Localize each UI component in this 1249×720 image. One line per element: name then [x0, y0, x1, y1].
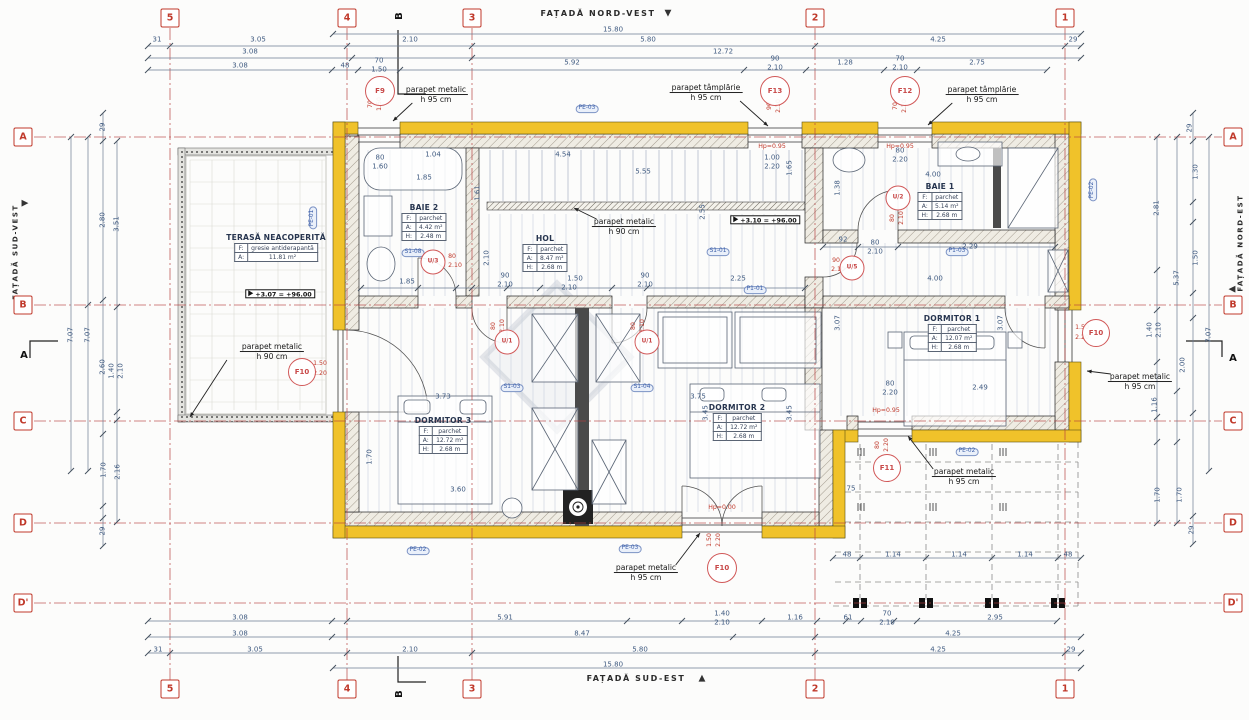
level-arrow-icon — [248, 290, 253, 296]
dim-label: 3.51 — [114, 216, 121, 232]
grid-bubble-row: D' — [1224, 594, 1243, 613]
grid-bubble-col: 2 — [806, 680, 825, 699]
room-info-table: F:parchetA:4.42 m²H:2.48 m — [401, 213, 446, 241]
room-title: DORMITOR 1 — [924, 314, 980, 323]
floor-plan-canvas — [0, 0, 1249, 720]
dim-label: 1.70 — [101, 462, 108, 478]
stair-void — [487, 150, 805, 210]
room-label: DORMITOR 3F:parchetA:12.72 m²H:2.68 m — [415, 416, 471, 454]
dim-label: 5.91 — [497, 615, 513, 622]
dim-label: 90 — [641, 273, 650, 280]
dim-label: 2.10 — [561, 285, 577, 292]
red-dim-label: 1.50 — [707, 533, 713, 547]
grid-bubble-row: D — [1224, 514, 1243, 533]
dim-label: 1.85 — [416, 175, 432, 182]
room-info-table: F:parchetA:5.14 m²H:2.68 m — [917, 192, 962, 220]
facade-label-sud-est: FAȚADĂ SUD-EST — [587, 675, 686, 683]
dim-label: 4.54 — [555, 152, 571, 159]
room-label: BAIE 1F:parchetA:5.14 m²H:2.68 m — [917, 182, 962, 220]
room-title: BAIE 2 — [401, 203, 446, 212]
dim-label: 48 — [1064, 552, 1073, 559]
window-marker: F12 — [890, 76, 920, 106]
dim-label: 2.10 — [402, 647, 418, 654]
dim-label: 1.14 — [1017, 552, 1033, 559]
red-dim-label: 80 — [890, 214, 896, 222]
dim-label: 4.00 — [925, 172, 941, 179]
dim-label: 1.40 — [714, 611, 730, 618]
door-marker: U/3 — [421, 250, 446, 275]
room-label: DORMITOR 1F:parchetA:12.07 m²H:2.68 m — [924, 314, 980, 352]
dim-label: 31 — [154, 647, 163, 654]
dim-label: 2.20 — [764, 164, 780, 171]
grid-bubble-col: 2 — [806, 9, 825, 28]
facade-arrow-left-icon: ▶ — [22, 200, 29, 209]
dim-label: 29 — [1067, 647, 1076, 654]
room-info-table: F:parchetA:12.72 m²H:2.68 m — [713, 413, 762, 441]
dim-label: 2.10 — [879, 620, 895, 627]
red-dim-label: 80 — [491, 322, 497, 330]
dim-label: 2.10 — [867, 249, 883, 256]
dim-label: 2.10 — [484, 250, 491, 266]
room-info-table: F:gresie antiderapantăA:11.81 m² — [234, 243, 318, 262]
dim-label: 2.81 — [1154, 200, 1161, 216]
section-marker: B — [395, 12, 405, 20]
dim-label: 3.45 — [787, 405, 794, 421]
dim-label: 80 — [871, 240, 880, 247]
sink-baie1 — [956, 147, 980, 161]
dim-label: 3.08 — [242, 49, 258, 56]
ref-tag: PE-02 — [956, 448, 979, 456]
facade-label-nord-est: FAȚADĂ NORD-EST — [1238, 194, 1245, 291]
dim-label: 1.50 — [567, 276, 583, 283]
room-title: HOL — [522, 234, 567, 243]
window-marker: F11 — [873, 454, 901, 482]
dim-label: 4.25 — [930, 647, 946, 654]
dim-label: 2.95 — [987, 615, 1003, 622]
dim-label: 48 — [843, 552, 852, 559]
level-tag: +3.10 = +96.00 — [730, 215, 800, 224]
dim-label: 2.10 — [402, 37, 418, 44]
dim-label: 4.25 — [945, 631, 961, 638]
grid-bubble-col: 5 — [161, 680, 180, 699]
level-arrow-icon — [733, 216, 738, 222]
dim-label: 75 — [847, 486, 856, 493]
dim-label: 5.80 — [640, 37, 656, 44]
annotation: parapet metalich 90 cm — [240, 342, 304, 362]
dim-label: 1.14 — [951, 552, 967, 559]
dim-label: 90 — [771, 56, 780, 63]
dim-label: 2.55 — [700, 204, 707, 220]
dim-label: 3.07 — [835, 315, 842, 331]
annotation: parapet tâmplărieh 95 cm — [946, 85, 1019, 105]
grid-bubble-row: A — [14, 128, 33, 147]
dim-label: 2.49 — [972, 385, 988, 392]
facade-label-nord-vest: FAȚADĂ NORD-VEST — [540, 10, 655, 18]
ref-tag: P1-01 — [744, 286, 767, 294]
dim-label: 1.16 — [1152, 397, 1159, 413]
red-dim-label: 80 — [448, 254, 456, 260]
dim-label: 7.07 — [68, 327, 75, 343]
dim-label: 1.40 — [1147, 322, 1154, 338]
room-title: DORMITOR 2 — [709, 403, 765, 412]
dim-label: 2.10 — [637, 282, 653, 289]
dim-label: 8.47 — [574, 631, 590, 638]
dim-label: 1.38 — [835, 180, 842, 196]
red-dim-label: 80 — [631, 322, 637, 330]
red-dim-label: Hp=0.00 — [708, 505, 736, 511]
dim-label: 5.37 — [1174, 270, 1181, 286]
door-marker: U/1 — [495, 330, 520, 355]
dim-label: 1.28 — [837, 60, 853, 67]
dim-label: 2.10 — [892, 65, 908, 72]
red-dim-label: 1.50 — [313, 361, 327, 367]
grid-bubble-row: A — [1224, 128, 1243, 147]
dim-label: 1.70 — [1177, 487, 1184, 503]
dim-label: 2.60 — [100, 359, 107, 375]
dim-label: 2.75 — [969, 60, 985, 67]
dim-label: 61 — [844, 615, 853, 622]
grid-bubble-col: 4 — [338, 680, 357, 699]
grid-bubble-col: 1 — [1056, 9, 1075, 28]
dim-label: 2.20 — [882, 390, 898, 397]
dim-label: 3.08 — [232, 63, 248, 70]
annotation: parapet metalich 95 cm — [614, 563, 678, 583]
section-marker: B — [395, 690, 405, 698]
ref-tag: PE-03 — [576, 105, 599, 113]
red-dim-label: 2.10 — [899, 211, 905, 225]
red-dim-label: 2.20 — [716, 533, 722, 547]
grid-bubble-col: 4 — [338, 9, 357, 28]
section-marker: A — [1229, 354, 1237, 364]
annotation: parapet metalich 95 cm — [404, 85, 468, 105]
dim-label: 3.05 — [250, 37, 266, 44]
dim-label: 3.08 — [232, 615, 248, 622]
room-label: BAIE 2F:parchetA:4.42 m²H:2.48 m — [401, 203, 446, 241]
annotation: parapet metalich 95 cm — [932, 467, 996, 487]
dim-label: 5.92 — [564, 60, 580, 67]
red-dim-label: 2.20 — [884, 438, 890, 452]
dim-label: 1.16 — [787, 615, 803, 622]
red-dim-label: Hp=0.95 — [872, 408, 900, 414]
facade-arrow-right-icon: ◀ — [1229, 286, 1236, 295]
red-dim-label: 80 — [875, 441, 881, 449]
ref-tag: S1-01 — [707, 248, 730, 256]
grid-bubble-col: 5 — [161, 9, 180, 28]
room-title: BAIE 1 — [917, 182, 962, 191]
dim-label: 2.10 — [714, 620, 730, 627]
dim-label: 1.50 — [1193, 250, 1200, 266]
room-info-table: F:parchetA:12.72 m²H:2.68 m — [419, 426, 468, 454]
room-title: DORMITOR 3 — [415, 416, 471, 425]
dim-label: 1.30 — [1193, 164, 1200, 180]
dim-label: 4.25 — [930, 37, 946, 44]
red-dim-label: Hp=0.95 — [758, 144, 786, 150]
facade-arrow-bottom-icon: ▲ — [699, 675, 706, 684]
ref-tag: S1-03 — [501, 384, 524, 392]
grid-bubble-col: 1 — [1056, 680, 1075, 699]
dim-label: 29 — [1189, 526, 1196, 535]
level-tag: +3.07 = +96.00 — [245, 289, 315, 298]
dim-label: 1.40 — [109, 363, 116, 379]
dim-label: 1.04 — [425, 152, 441, 159]
dim-label: 2.16 — [115, 464, 122, 480]
dim-label: 1.50 — [371, 67, 387, 74]
dim-label: 15.80 — [603, 662, 623, 669]
washer — [364, 196, 392, 236]
dim-label: 29 — [1187, 124, 1194, 133]
grid-bubble-row: D — [14, 514, 33, 533]
dim-label: 4.00 — [927, 276, 943, 283]
dim-label: 2.10 — [118, 363, 125, 379]
dim-label: 80 — [886, 381, 895, 388]
window-marker: F10 — [707, 553, 737, 583]
red-dim-label: 2.10 — [448, 263, 462, 269]
ref-tag: PE-01 — [309, 207, 317, 230]
section-marker: A — [20, 351, 28, 361]
wc-baie1 — [833, 148, 865, 172]
grid-bubble-col: 3 — [463, 680, 482, 699]
dim-label: 5.80 — [632, 647, 648, 654]
window-marker: F13 — [760, 76, 790, 106]
dim-label: 90 — [501, 273, 510, 280]
door-marker: U/5 — [840, 256, 865, 281]
dim-label: 1.60 — [372, 164, 388, 171]
dim-label: 48 — [341, 63, 350, 70]
annotation: parapet tâmplărieh 95 cm — [670, 83, 743, 103]
door-marker: U/2 — [886, 186, 911, 211]
room-info-table: F:parchetA:12.07 m²H:2.68 m — [928, 324, 977, 352]
ref-tag: PE-02 — [407, 547, 430, 555]
dim-label: 3.73 — [435, 394, 451, 401]
ref-tag: PE-02 — [1089, 179, 1097, 202]
dim-label: 31 — [153, 37, 162, 44]
window-marker: F10 — [1082, 319, 1110, 347]
dim-label: 1.70 — [367, 449, 374, 465]
dim-label: 2.10 — [1156, 322, 1163, 338]
dim-label: 2.10 — [767, 65, 783, 72]
annotation: parapet metalich 90 cm — [592, 217, 656, 237]
grid-bubble-row: B — [1224, 296, 1243, 315]
room-label: HOLF:parchetA:8.47 m²H:2.68 m — [522, 234, 567, 272]
room-title: TERASĂ NEACOPERITĂ — [226, 233, 326, 242]
dim-label: 7.07 — [1206, 327, 1213, 343]
dim-label: 1.85 — [399, 279, 415, 286]
ref-tag: P1-03 — [946, 248, 969, 256]
dim-label: 2.00 — [1180, 357, 1187, 373]
window-marker: F9 — [365, 76, 395, 106]
floor-plan: FAȚADĂ NORD-VEST ▼ FAȚADĂ SUD-EST ▲ FAȚA… — [0, 0, 1249, 720]
dim-label: 12.72 — [713, 49, 733, 56]
dim-label: 70 — [375, 58, 384, 65]
grid-bubble-row: D' — [14, 594, 33, 613]
grid-bubble-col: 3 — [463, 9, 482, 28]
dim-label: 2.80 — [100, 212, 107, 228]
dim-label: 3.05 — [247, 647, 263, 654]
dim-label: 1.70 — [1155, 487, 1162, 503]
red-dim-label: 90 — [832, 258, 840, 264]
dim-label: 3.60 — [450, 487, 466, 494]
dim-label: 2.20 — [892, 157, 908, 164]
dim-label: 3.75 — [690, 394, 706, 401]
red-dim-label: Hp=0.95 — [886, 144, 914, 150]
dim-label: 7.07 — [85, 327, 92, 343]
chimney — [563, 490, 593, 524]
dim-label: 2.25 — [730, 276, 746, 283]
room-label: TERASĂ NEACOPERITĂF:gresie antiderapantă… — [226, 233, 326, 262]
grid-bubble-row: B — [14, 296, 33, 315]
dim-label: 1.00 — [764, 155, 780, 162]
stool — [502, 498, 522, 518]
dim-label: 29 — [100, 527, 107, 536]
dim-label: 2.10 — [497, 282, 513, 289]
dim-label: 29 — [100, 123, 107, 132]
room-info-table: F:parchetA:8.47 m²H:2.68 m — [522, 244, 567, 272]
dim-label: 5.55 — [635, 169, 651, 176]
grid-bubble-row: C — [14, 412, 33, 431]
door-marker: U/1 — [635, 330, 660, 355]
dim-label: 80 — [376, 155, 385, 162]
window-marker: F10 — [288, 358, 316, 386]
dim-label: 1.65 — [787, 160, 794, 176]
grid-bubble-row: C — [1224, 412, 1243, 431]
dim-label: 1.14 — [885, 552, 901, 559]
annotation: parapet metalich 95 cm — [1108, 372, 1172, 392]
ref-tag: PE-03 — [619, 545, 642, 553]
dim-label: 3.08 — [232, 631, 248, 638]
dim-label: 1.61 — [475, 185, 482, 201]
dim-label: 70 — [896, 56, 905, 63]
facade-arrow-top-icon: ▼ — [665, 10, 672, 19]
ref-tag: S1-04 — [631, 384, 654, 392]
dim-label: 70 — [883, 611, 892, 618]
dim-label: 15.80 — [603, 27, 623, 34]
facade-label-sud-vest: FAȚADĂ SUD-VEST — [13, 204, 20, 300]
room-label: DORMITOR 2F:parchetA:12.72 m²H:2.68 m — [709, 403, 765, 441]
dim-label: 3.07 — [998, 315, 1005, 331]
dim-label: 29 — [1069, 37, 1078, 44]
wc-baie2 — [367, 247, 395, 281]
dim-label: 92 — [839, 237, 848, 244]
